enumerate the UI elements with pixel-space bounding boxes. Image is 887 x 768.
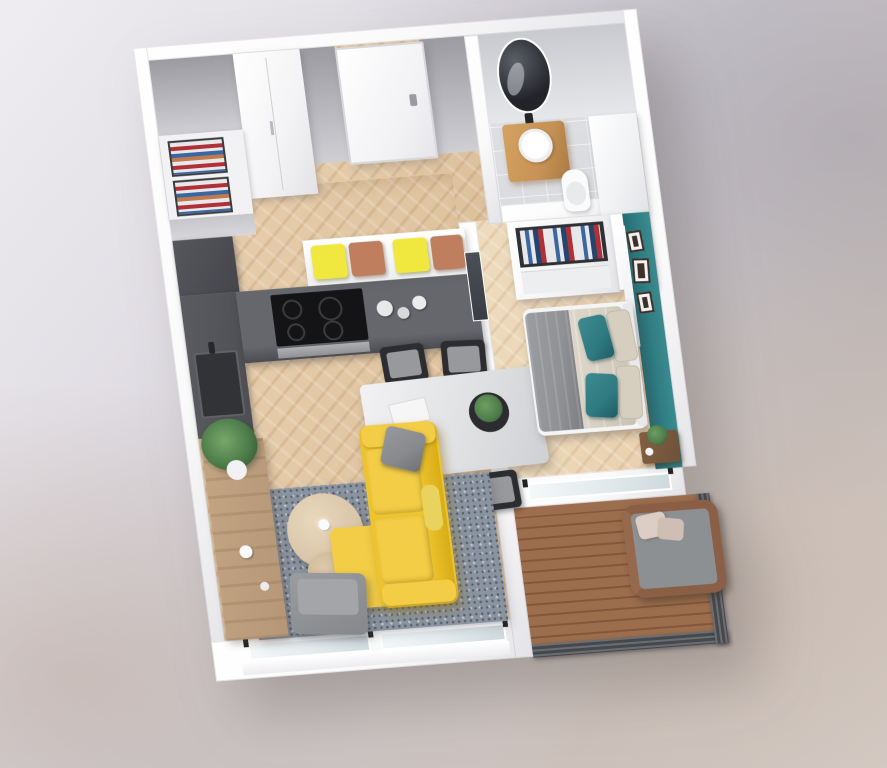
pillow-teal: [585, 373, 618, 418]
bench-cushion-yellow: [392, 237, 430, 273]
hanging-clothes: [173, 177, 234, 217]
hanging-clothes: [520, 225, 604, 265]
window-stop: [522, 479, 528, 487]
balcony-pillow: [657, 517, 684, 541]
kitchen-sink: [193, 350, 245, 419]
entry-door: [334, 41, 438, 165]
hanging-clothes: [167, 137, 228, 177]
rattan-armchair: [620, 498, 728, 599]
floor-plan: [133, 9, 720, 687]
bench-cushion-yellow: [310, 244, 348, 280]
scene-background: { "scene": { "type": "isometric-3d-floor…: [0, 0, 887, 768]
bench-cushion-terracotta: [430, 234, 466, 270]
chair-seat: [386, 349, 422, 379]
bench-cushion-terracotta: [348, 241, 386, 277]
picture-frame: [632, 258, 651, 283]
window-stop: [243, 639, 249, 647]
kitchen-tall-unit: [172, 236, 239, 296]
armchair-seat: [297, 579, 359, 615]
cooktop: [270, 288, 368, 347]
closet-side-wall-face: [149, 54, 243, 136]
pillow-beige: [615, 365, 643, 419]
chair-seat: [447, 346, 482, 373]
door-handle: [409, 94, 418, 106]
